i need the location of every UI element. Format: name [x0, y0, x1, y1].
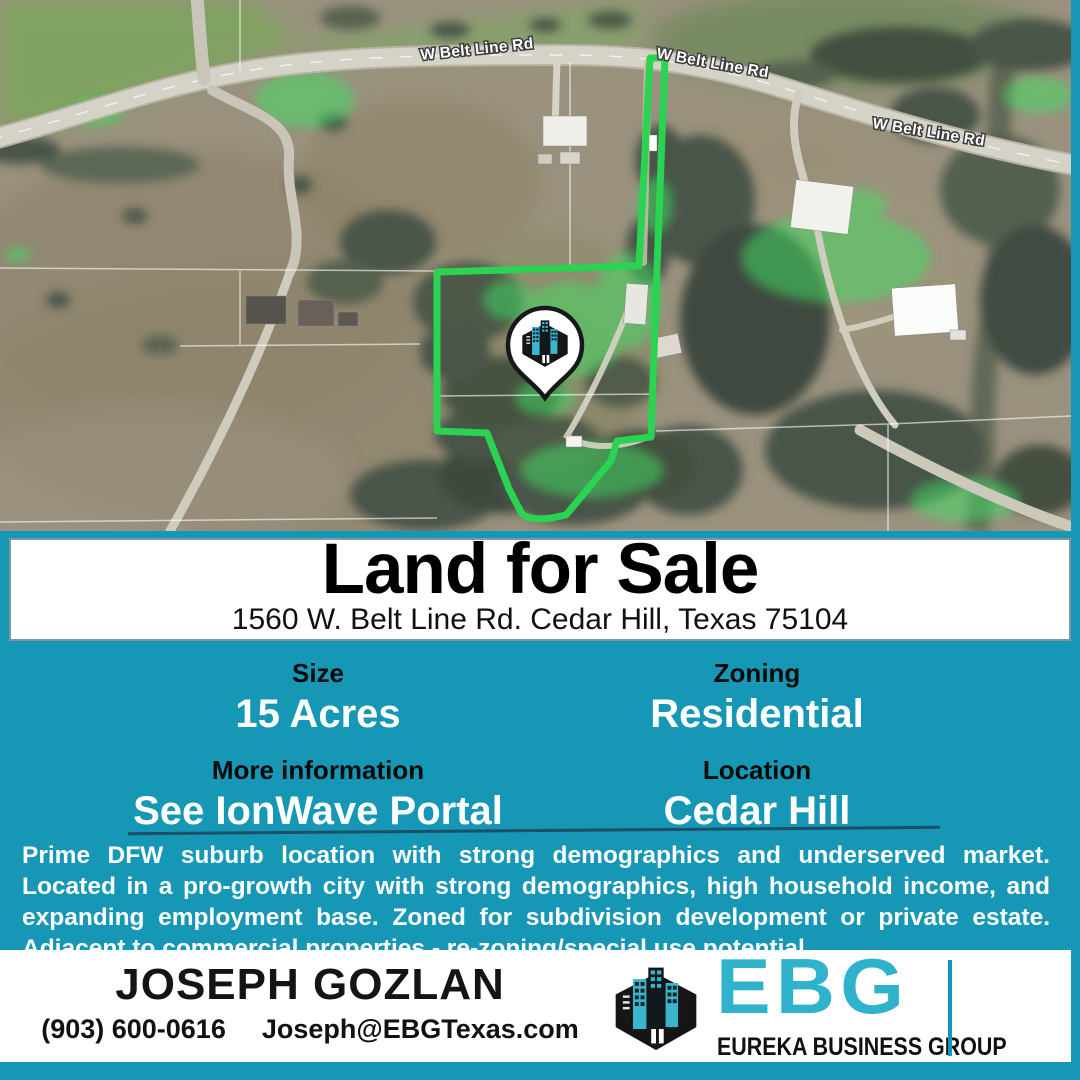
title-banner-card: Land for Sale 1560 W. Belt Line Rd. Ceda… [9, 538, 1071, 641]
footer-divider [948, 960, 952, 1056]
title-banner: Land for Sale 1560 W. Belt Line Rd. Ceda… [0, 531, 1080, 648]
property-info-section: Size 15 Acres More information See IonWa… [0, 648, 1080, 950]
contact-footer: JOSEPH GOZLAN (903) 600-0616 Joseph@EBGT… [0, 950, 1071, 1062]
agent-email: Joseph@EBGTexas.com [262, 1014, 579, 1045]
ebg-tagline: EUREKA BUSINESS GROUP [717, 1034, 1007, 1062]
satellite-map: W Belt Line Rd W Belt Line Rd W Belt Lin… [0, 0, 1071, 531]
ebg-letters: EBG [716, 946, 909, 1026]
zoning-value: Residential [540, 691, 974, 737]
ebg-logo [608, 954, 704, 1058]
map-section: W Belt Line Rd W Belt Line Rd W Belt Lin… [0, 0, 1071, 531]
agent-name: JOSEPH GOZLAN [0, 962, 620, 1008]
zoning-label: Zoning [540, 657, 974, 689]
agent-phone: (903) 600-0616 [41, 1014, 226, 1045]
page-title: Land for Sale [322, 534, 759, 606]
property-address: 1560 W. Belt Line Rd. Cedar Hill, Texas … [232, 604, 848, 636]
truck-on-road [649, 135, 657, 151]
info-column-right: Zoning Residential Location Cedar Hill [540, 648, 974, 834]
location-label: Location [540, 754, 974, 786]
contact-row: (903) 600-0616 Joseph@EBGTexas.com [0, 1014, 620, 1045]
land-for-sale-flyer: W Belt Line Rd W Belt Line Rd W Belt Lin… [0, 0, 1080, 1080]
